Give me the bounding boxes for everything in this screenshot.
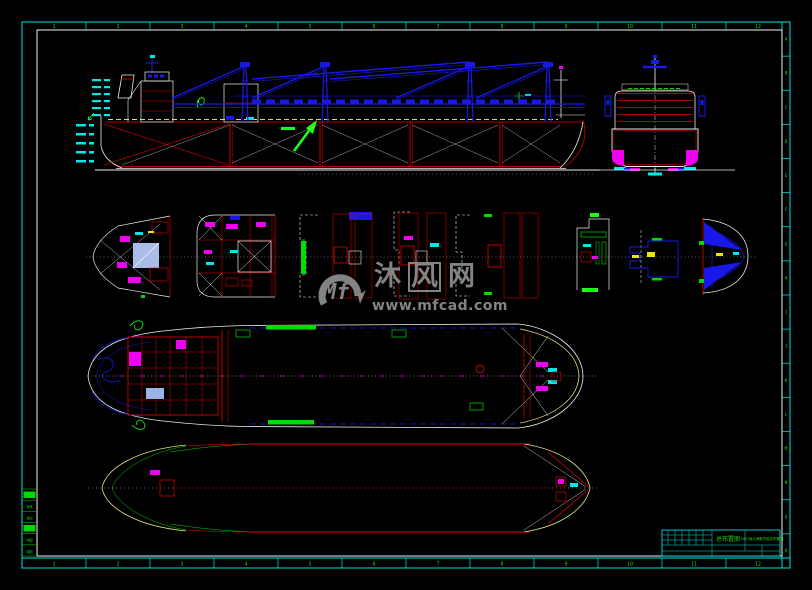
bottom-mark bbox=[624, 168, 630, 171]
draft-mark bbox=[648, 173, 662, 176]
green-deck-mark bbox=[281, 127, 295, 130]
speckle-panel bbox=[333, 214, 351, 298]
ruler-letter: E bbox=[785, 173, 788, 179]
hatch-cover bbox=[336, 100, 345, 104]
label-blob bbox=[206, 262, 214, 265]
ruler-letter: F bbox=[785, 207, 788, 213]
hatch-cover bbox=[364, 100, 373, 104]
hatch-cover bbox=[252, 100, 261, 104]
label-blob bbox=[484, 214, 492, 217]
dim-label bbox=[76, 133, 86, 136]
green-spiral-mark bbox=[197, 98, 204, 108]
mast-flag bbox=[559, 66, 563, 69]
hatch-cover bbox=[490, 100, 499, 104]
ruler-number-top: 2 bbox=[116, 24, 119, 30]
deck-edge-curve bbox=[186, 530, 252, 532]
fore-box bbox=[556, 492, 566, 501]
bollard-detail bbox=[701, 100, 704, 105]
ruler-number-bottom: 7 bbox=[436, 562, 439, 568]
label-blob bbox=[226, 224, 238, 229]
room-box bbox=[334, 247, 347, 263]
blue-topbar bbox=[349, 212, 372, 220]
room-box bbox=[226, 278, 238, 286]
room-box bbox=[401, 246, 414, 265]
derrick-boom bbox=[476, 69, 548, 101]
ruler-letter: I bbox=[785, 310, 788, 316]
ruler-number-top: 10 bbox=[627, 24, 633, 30]
ruler-letter: L bbox=[785, 412, 788, 418]
hatch-cover bbox=[420, 100, 429, 104]
ruler-number-bottom: 12 bbox=[755, 562, 761, 568]
room-fill bbox=[129, 352, 141, 366]
ruler-letter: H bbox=[785, 275, 788, 281]
green-box bbox=[236, 330, 250, 337]
ruler-number-bottom: 9 bbox=[564, 562, 567, 568]
ruler-number-top: 9 bbox=[564, 24, 567, 30]
ruler-number-bottom: 8 bbox=[500, 562, 503, 568]
ruler-number-bottom: 3 bbox=[180, 562, 183, 568]
label-blob bbox=[536, 386, 548, 391]
drawing-title: 总布置图 bbox=[716, 535, 740, 543]
crane-tower bbox=[545, 66, 547, 122]
body-end-view bbox=[578, 55, 735, 176]
side-elevation-view bbox=[76, 55, 600, 174]
dim-label bbox=[92, 86, 101, 88]
deck-edge-curve bbox=[186, 444, 252, 446]
ruler-number-bottom: 4 bbox=[244, 562, 247, 568]
sheer-diagonal bbox=[122, 125, 230, 165]
hatch-cover bbox=[504, 100, 513, 104]
hatch-cover bbox=[448, 100, 457, 104]
label-blob bbox=[150, 470, 160, 475]
hatch-cover bbox=[322, 100, 331, 104]
dim-label bbox=[104, 93, 110, 95]
deckhouse-front bbox=[128, 81, 141, 122]
ruler-number-bottom: 11 bbox=[691, 562, 697, 568]
room-box bbox=[150, 268, 168, 281]
engine-box bbox=[160, 480, 174, 496]
sig-row-fill bbox=[24, 525, 36, 532]
crane-tower bbox=[326, 66, 328, 122]
ruler-letter: D bbox=[785, 139, 788, 145]
speckle-panel bbox=[427, 213, 446, 299]
cross-sections-row bbox=[86, 212, 758, 299]
signature-block: 审核校对制图描图 bbox=[22, 489, 37, 556]
room-fill bbox=[176, 340, 186, 349]
mast-platform bbox=[651, 60, 659, 64]
ruler-letter: B bbox=[785, 71, 788, 77]
hatch-box bbox=[416, 251, 427, 265]
hatch-cover bbox=[532, 100, 541, 104]
label-blob bbox=[733, 252, 739, 255]
dim-label bbox=[92, 79, 101, 81]
green-box bbox=[392, 330, 406, 337]
ruler-letter: A bbox=[785, 37, 788, 43]
label-blob bbox=[548, 380, 557, 384]
hatch-cover bbox=[476, 100, 485, 104]
dim-label bbox=[89, 151, 94, 154]
hatch-x bbox=[238, 241, 271, 272]
hatch-cover bbox=[350, 100, 359, 104]
label-blob bbox=[558, 479, 564, 484]
window bbox=[160, 75, 164, 78]
section2-xbrace bbox=[199, 216, 222, 296]
hatch-cover bbox=[518, 100, 527, 104]
mast-top bbox=[653, 55, 657, 58]
label-blob bbox=[230, 216, 240, 220]
dim-label bbox=[92, 107, 101, 109]
derrick-boom bbox=[476, 66, 548, 98]
bilge-patch-right bbox=[686, 150, 698, 166]
ruler-number-bottom: 5 bbox=[308, 562, 311, 568]
house-detail bbox=[246, 117, 254, 120]
green-pillar bbox=[602, 242, 606, 264]
label-blob bbox=[583, 244, 591, 247]
dim-label bbox=[89, 160, 94, 163]
hatch-cover bbox=[378, 100, 387, 104]
title-block: 总布置图 500T级沿海散货船总布置图 bbox=[662, 530, 784, 556]
ruler-number-top: 7 bbox=[436, 24, 439, 30]
ruler-number-top: 1 bbox=[52, 24, 55, 30]
label-blob bbox=[404, 236, 413, 240]
crane-tower bbox=[242, 66, 244, 122]
ruler-number-bottom: 1 bbox=[52, 562, 55, 568]
ruler-letter: P bbox=[785, 548, 788, 554]
yellow-mark bbox=[632, 255, 639, 258]
green-dash bbox=[652, 238, 662, 241]
deckhouse bbox=[141, 81, 173, 122]
house-detail bbox=[226, 116, 234, 120]
mast-light bbox=[150, 55, 155, 58]
derrick-boom bbox=[172, 66, 245, 98]
label-blob bbox=[256, 222, 266, 227]
ruler-number-top: 4 bbox=[244, 24, 247, 30]
label-blob bbox=[699, 241, 704, 245]
speckle-panel bbox=[355, 214, 372, 298]
stern-curve bbox=[92, 392, 140, 416]
ruler-letter: K bbox=[785, 378, 788, 384]
ruler-number-top: 11 bbox=[691, 24, 697, 30]
label-blob bbox=[430, 243, 439, 247]
window bbox=[148, 75, 152, 78]
dim-label bbox=[76, 142, 86, 145]
label-blob bbox=[484, 292, 492, 295]
derrick-boom bbox=[252, 66, 325, 98]
crane-tower bbox=[549, 66, 551, 122]
cad-viewer-canvas: 112233445566778899101011111212ABCDEFGHIJ… bbox=[0, 0, 812, 590]
bottom-mark bbox=[678, 168, 684, 171]
sig-row-text: 制图 bbox=[26, 538, 32, 543]
hatch-cover bbox=[392, 100, 401, 104]
capstan-circle bbox=[476, 365, 484, 373]
green-mark bbox=[590, 213, 599, 217]
dim-label bbox=[104, 86, 110, 88]
bottom-mark bbox=[668, 168, 678, 171]
yellow-mark bbox=[647, 252, 655, 257]
hatch-cover bbox=[546, 100, 555, 104]
bow-yellow-arc bbox=[520, 329, 579, 423]
side-bollard-right bbox=[699, 96, 705, 116]
room-box bbox=[488, 245, 501, 267]
titleblock-cols bbox=[668, 530, 762, 556]
ruler-number-bottom: 2 bbox=[116, 562, 119, 568]
ruler-number-bottom: 10 bbox=[627, 562, 633, 568]
window bbox=[154, 75, 158, 78]
hatch-cover bbox=[308, 100, 317, 104]
dim-label bbox=[92, 93, 101, 95]
room-box bbox=[152, 222, 168, 233]
side-bollard-left bbox=[605, 96, 611, 116]
section6-outline bbox=[577, 219, 609, 290]
green-cloud-bottom bbox=[132, 420, 145, 429]
hatch-cover bbox=[434, 100, 443, 104]
speckle-panel bbox=[399, 213, 418, 299]
ruler-number-top: 12 bbox=[755, 24, 761, 30]
crane-tower bbox=[467, 66, 469, 122]
sig-row-text: 校对 bbox=[26, 515, 33, 520]
ruler-letter: G bbox=[785, 241, 788, 247]
speckle-panel bbox=[522, 213, 538, 298]
windlass-box bbox=[552, 372, 561, 381]
ruler-letter: N bbox=[785, 480, 788, 486]
label-blob bbox=[536, 362, 548, 367]
label-blob bbox=[205, 222, 215, 227]
ruler-number-top: 5 bbox=[308, 24, 311, 30]
green-beam bbox=[581, 232, 606, 237]
section4-casing bbox=[394, 212, 410, 296]
hatch-cover bbox=[266, 100, 275, 104]
label-blob bbox=[548, 368, 557, 372]
bilge-patch-left bbox=[612, 150, 624, 166]
dim-label bbox=[76, 124, 86, 127]
stern-gear-scribble bbox=[98, 358, 120, 382]
green-cloud-top bbox=[130, 321, 143, 330]
green-pillar bbox=[596, 242, 599, 264]
dim-label bbox=[92, 100, 101, 102]
room-box bbox=[242, 280, 252, 286]
dim-label bbox=[104, 114, 110, 116]
green-bar-top bbox=[266, 325, 316, 330]
ruler-letter: O bbox=[785, 514, 788, 520]
label-blob bbox=[230, 250, 238, 253]
label-blob bbox=[592, 256, 598, 259]
room-box bbox=[581, 252, 591, 262]
hold-plan-view bbox=[88, 444, 600, 532]
label-blob bbox=[141, 295, 145, 298]
label-blob bbox=[135, 232, 143, 235]
sig-row-fill bbox=[24, 492, 36, 499]
ship-general-arrangement-drawing: 112233445566778899101011111212ABCDEFGHIJ… bbox=[0, 0, 812, 590]
label-blob bbox=[204, 250, 212, 254]
bottom-mark bbox=[684, 167, 696, 170]
speckle-panel bbox=[504, 213, 520, 298]
elevation-details bbox=[76, 62, 560, 167]
ruler-letter: J bbox=[785, 344, 788, 350]
label-blob bbox=[699, 279, 704, 283]
dim-label bbox=[104, 100, 110, 102]
dim-label bbox=[89, 142, 94, 145]
bollard-detail bbox=[607, 100, 610, 105]
ruler-letter: M bbox=[785, 446, 788, 452]
bottom-mark bbox=[630, 168, 640, 171]
derrick-boom bbox=[252, 69, 325, 101]
green-mark bbox=[582, 288, 598, 292]
crane-tower bbox=[322, 66, 324, 122]
dim-label bbox=[92, 114, 101, 116]
green-dash bbox=[652, 278, 662, 281]
ruler-number-top: 3 bbox=[180, 24, 183, 30]
hatch-cover bbox=[462, 100, 471, 104]
sig-row-text: 描图 bbox=[26, 549, 32, 554]
ruler-number-top: 8 bbox=[500, 24, 503, 30]
dim-label bbox=[89, 133, 94, 136]
label-blob bbox=[117, 262, 127, 268]
hatch-cover bbox=[294, 100, 303, 104]
ruler-number-bottom: 6 bbox=[372, 562, 375, 568]
green-bar-bottom bbox=[268, 420, 314, 425]
main-deck-plan-view bbox=[88, 321, 596, 430]
dim-label bbox=[76, 151, 86, 154]
label-blob bbox=[570, 483, 578, 487]
section5-casing bbox=[456, 215, 470, 296]
label-blob bbox=[120, 236, 130, 242]
dim-label bbox=[76, 160, 86, 163]
hatch-cover bbox=[406, 100, 415, 104]
green-box bbox=[470, 403, 483, 410]
titleblock-border bbox=[662, 530, 780, 556]
ruler-letter: C bbox=[785, 105, 788, 111]
green-bar bbox=[301, 241, 306, 274]
section7-outline bbox=[630, 241, 678, 277]
hatch-cover bbox=[280, 100, 289, 104]
dim-label bbox=[104, 79, 110, 81]
label-blob bbox=[716, 253, 723, 256]
dim-label bbox=[89, 124, 94, 127]
ruler-number-top: 6 bbox=[372, 24, 375, 30]
machinery-casing bbox=[146, 388, 164, 399]
label-blob bbox=[148, 231, 154, 233]
sig-row-text: 审核 bbox=[26, 504, 33, 509]
dim-label bbox=[104, 107, 110, 109]
crane-tower bbox=[246, 66, 248, 122]
label-blob bbox=[128, 277, 141, 283]
crane-tower bbox=[471, 66, 473, 122]
drawing-subtitle: 500T级沿海散货船总布置图 bbox=[741, 536, 784, 541]
